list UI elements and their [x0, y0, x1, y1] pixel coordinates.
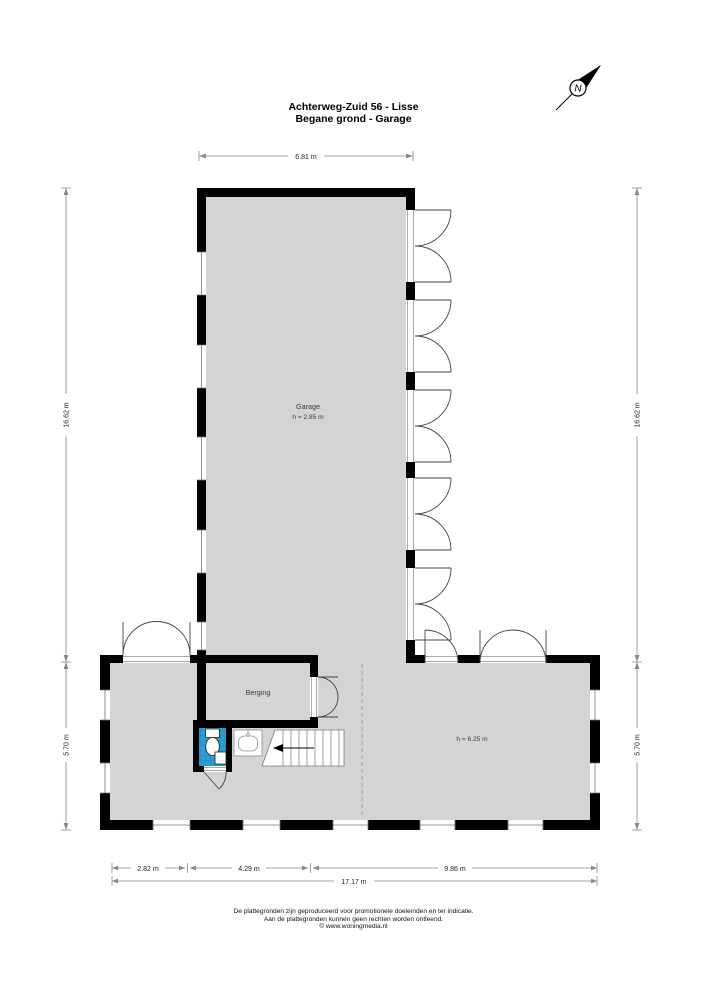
dim-right-lower: 5.70 m — [632, 662, 642, 830]
lower-left-wall — [100, 655, 110, 830]
dim-right-upper: 16.62 m — [632, 188, 642, 662]
floorplan-drawing: Garage h = 2.85 m Berging h = 6.25 m 6.8… — [0, 0, 707, 1000]
footer-disclaimer: De plattegronden zijn geproduceerd voor … — [0, 908, 707, 931]
dim-label-garage-width: 6.81 m — [295, 154, 317, 161]
north-compass-icon: N — [556, 65, 601, 110]
lower-right-wall — [590, 655, 600, 830]
berging-top-wall — [197, 655, 318, 663]
dim-left-upper: 16.62 m — [61, 188, 71, 662]
garage-double-door-5 — [415, 568, 451, 640]
garage-double-door-4 — [415, 478, 451, 550]
dim-label-left-upper: 16.62 m — [64, 402, 71, 427]
dim-label-bottom-1: 2.82 m — [137, 866, 159, 873]
small-sink-icon — [215, 752, 226, 764]
dim-label-bottom-2: 4.29 m — [238, 866, 260, 873]
washbasin-unit — [234, 730, 262, 756]
dim-bottom-segments: 2.82 m 4.29 m 9.86 m — [112, 863, 597, 873]
dim-label-bottom-3: 9.86 m — [444, 866, 466, 873]
garage-floor — [197, 188, 415, 663]
dim-garage-width: 6.81 m — [199, 151, 413, 161]
floorplan-page: Achterweg-Zuid 56 - Lisse Begane grond -… — [0, 0, 707, 1000]
toilet-bottom-wall-left — [193, 766, 204, 772]
berging-room-label: Berging — [246, 688, 271, 697]
toilet-fixture-icon — [206, 729, 220, 756]
lower-floor — [100, 655, 600, 830]
dim-label-right-lower: 5.70 m — [635, 734, 642, 756]
footer-line-1: De plattegronden zijn geproduceerd voor … — [0, 908, 707, 916]
berging-bottom-wall — [193, 720, 318, 728]
garage-double-door-1 — [415, 210, 451, 282]
floor-areas — [100, 188, 600, 830]
garage-double-door-3 — [415, 390, 451, 462]
toilet-bottom-wall-right — [226, 766, 232, 772]
dim-label-right-upper: 16.62 m — [635, 402, 642, 427]
washbasin-basin-icon — [239, 736, 258, 751]
toilet-left-wall — [193, 720, 199, 772]
dim-label-left-lower: 5.70 m — [64, 734, 71, 756]
dim-label-bottom-total: 17.17 m — [341, 879, 366, 886]
open-space-height-label: h = 6.25 m — [456, 736, 488, 743]
garage-double-door-2 — [415, 300, 451, 372]
dim-bottom-total: 17.17 m — [112, 876, 597, 886]
compass-north-label: N — [574, 84, 582, 95]
garage-door-openings — [406, 210, 415, 640]
lower-left-double-door — [123, 622, 190, 656]
toilet-room — [199, 728, 226, 766]
toilet-right-wall — [226, 728, 232, 772]
garage-top-wall — [197, 188, 415, 197]
garage-height-label: h = 2.85 m — [292, 414, 324, 421]
dim-left-lower: 5.70 m — [61, 662, 71, 830]
garage-room-label: Garage — [296, 402, 320, 411]
footer-line-3: © www.woningmedia.nl — [0, 923, 707, 931]
stairs — [262, 730, 344, 766]
